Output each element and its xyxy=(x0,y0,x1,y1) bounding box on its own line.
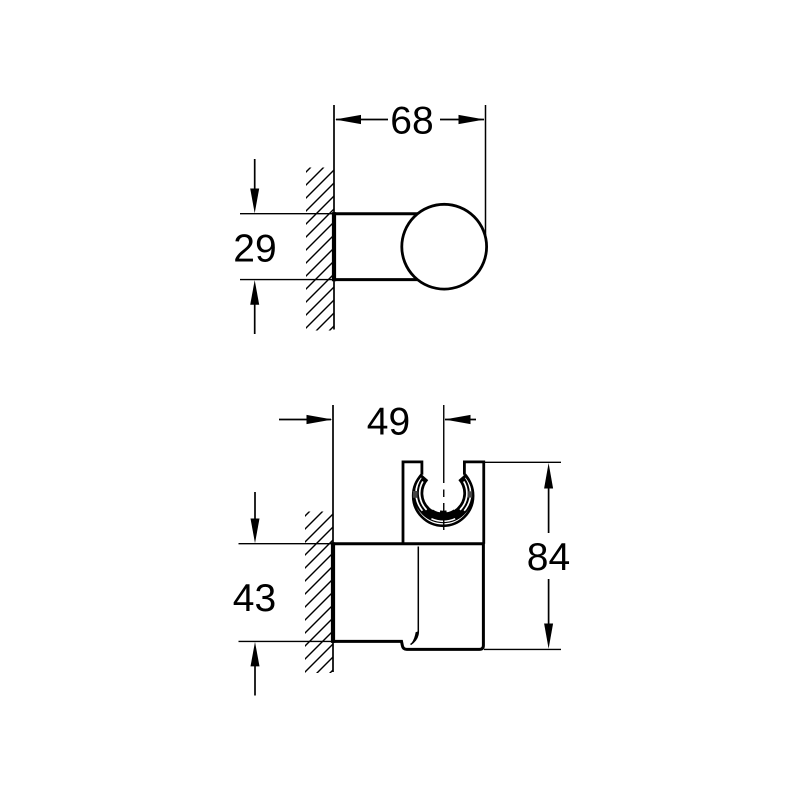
svg-text:43: 43 xyxy=(233,577,276,620)
svg-text:84: 84 xyxy=(527,536,570,579)
svg-text:49: 49 xyxy=(367,401,410,444)
svg-text:68: 68 xyxy=(390,100,433,143)
svg-text:29: 29 xyxy=(233,228,276,271)
